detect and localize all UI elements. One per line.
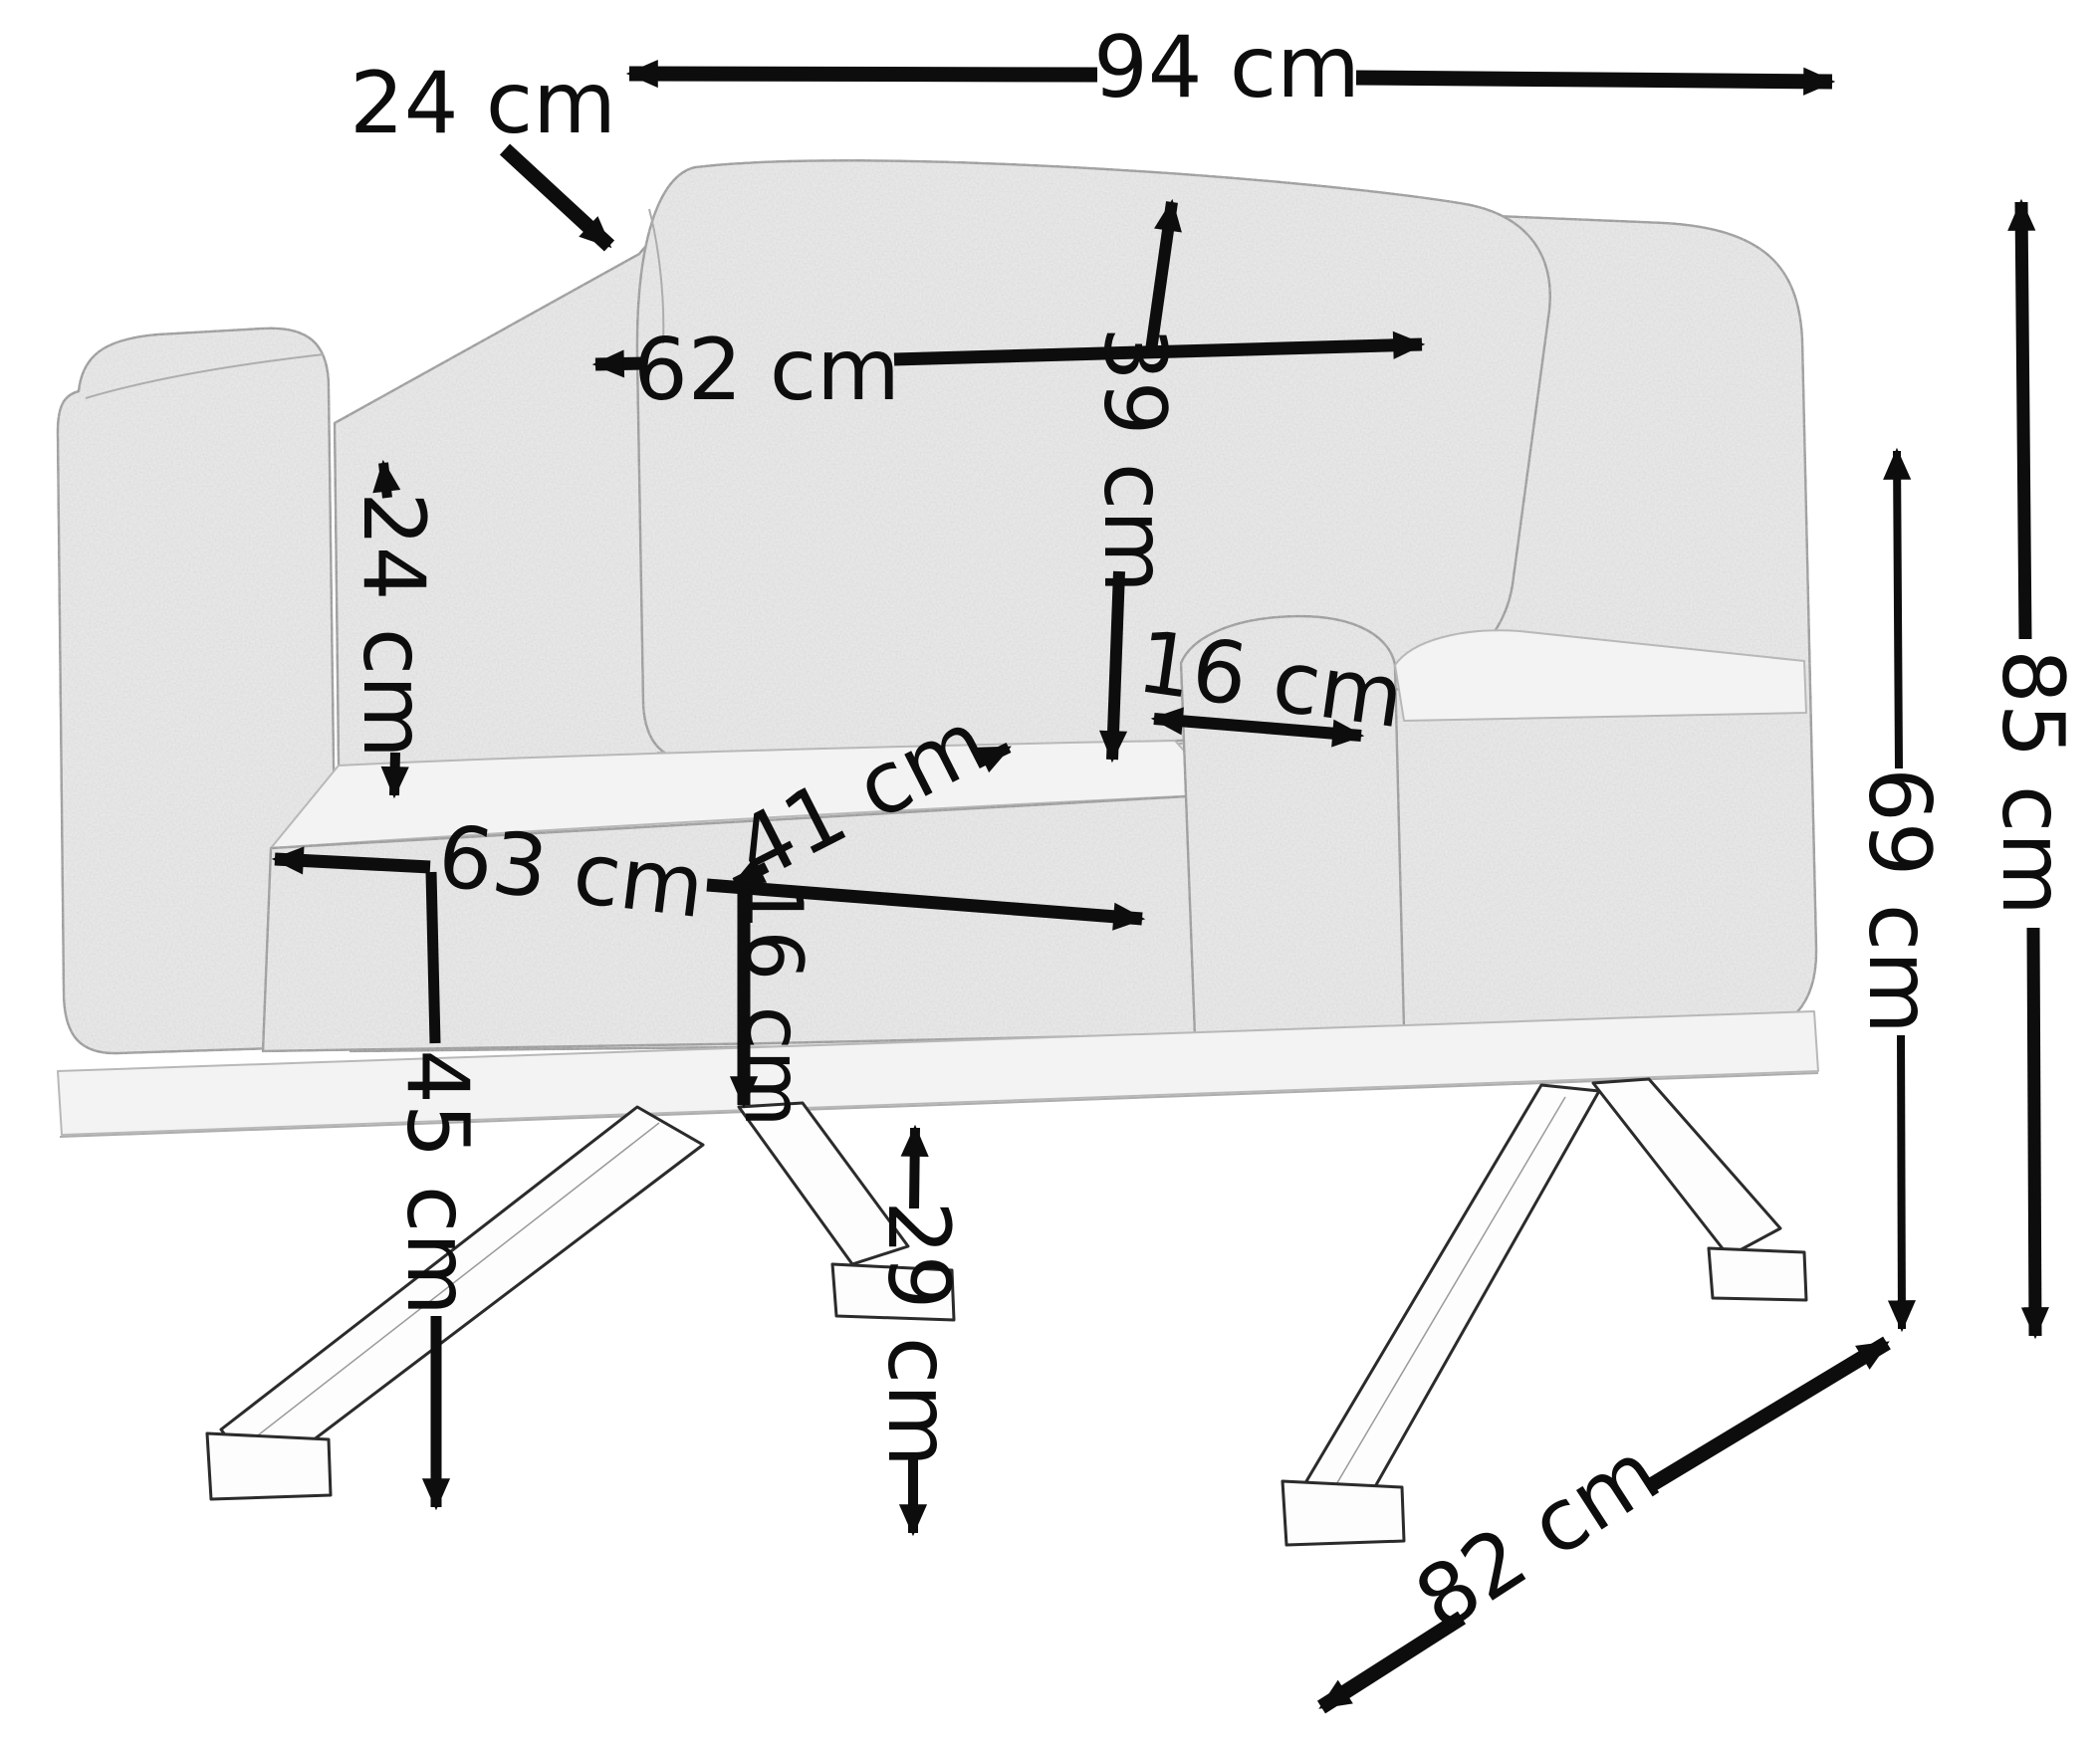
dimension-seat-cushion-thickness: 16 cm [727, 879, 819, 1127]
back-cushion-width-label: 62 cm [633, 321, 900, 420]
dimension-line [1112, 571, 1119, 760]
dimension-line [431, 872, 435, 1043]
back-cushion-height-label: 39 cm [1084, 327, 1184, 593]
dimension-line [914, 1128, 915, 1208]
dimension-line [1356, 78, 1832, 82]
overall-height-label: 85 cm [1983, 649, 2082, 916]
dimension-overall-width: 94 cm [629, 18, 1832, 117]
dimension-line [629, 74, 1097, 75]
armrest-top-height-label: 69 cm [1849, 767, 1949, 1034]
armrest-height-above-seat-label: 24 cm [344, 492, 443, 759]
seat-height-label: 45 cm [387, 1049, 487, 1316]
dimension-line [394, 753, 395, 795]
dimension-diagram-canvas: 94 cm 24 cm 62 cm 39 cm 24 cm 16 cm [0, 0, 2100, 1752]
dimension-back-cushion-thickness: 24 cm [350, 54, 616, 246]
dimension-line [1651, 1343, 1887, 1485]
leg-right-front-inner-line [1332, 1097, 1565, 1491]
seat-cushion-thickness-label: 16 cm [727, 879, 819, 1127]
dimension-armrest-top-height: 69 cm [1849, 451, 1949, 1329]
leader-arrow [505, 149, 609, 246]
leg-right-front [1306, 1085, 1599, 1513]
leg-right-front-foot [1283, 1481, 1404, 1545]
dimension-line [1901, 1035, 1902, 1329]
dimension-line [2021, 202, 2025, 639]
leg-right-rear-foot [1709, 1248, 1806, 1300]
armchair-dimension-diagram: 94 cm 24 cm 62 cm 39 cm 24 cm 16 cm [0, 0, 2100, 1752]
back-cushion-thickness-label: 24 cm [350, 54, 616, 153]
leg-right-rear [1593, 1079, 1780, 1256]
leg-front-left-foot [207, 1433, 331, 1499]
underframe-clearance-label: 29 cm [868, 1201, 968, 1467]
dimension-underframe-clearance: 29 cm [868, 1128, 968, 1533]
overall-depth-label: 82 cm [1399, 1423, 1677, 1651]
dimension-line [2033, 928, 2035, 1336]
dimension-overall-height: 85 cm [1983, 202, 2082, 1336]
dimension-armrest-height-above-seat: 24 cm [344, 463, 443, 795]
dimension-line [1897, 451, 1899, 768]
dimension-line [275, 859, 430, 867]
overall-width-label: 94 cm [1093, 18, 1360, 117]
